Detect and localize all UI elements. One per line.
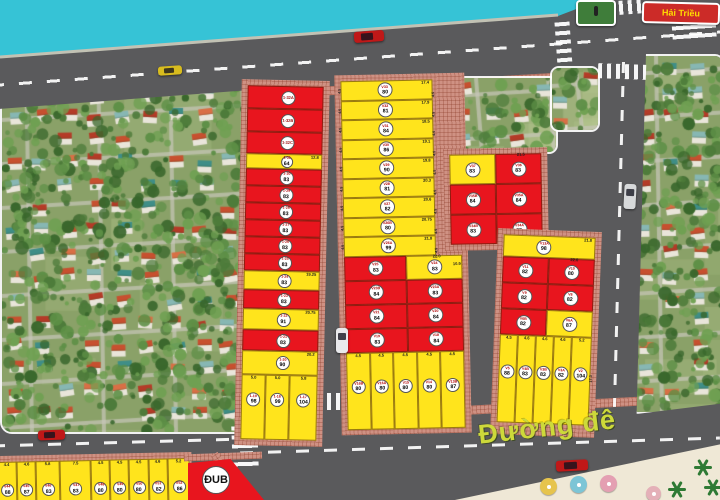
lot-code: 1-21 [280, 335, 287, 338]
plot-label: 1-2583 [278, 255, 292, 269]
plot-V13B[interactable]: 4.5V13B87 [440, 350, 465, 427]
lot-area: 88 [5, 490, 11, 495]
dimension-label: 4.5 [432, 111, 436, 116]
plot-1-29[interactable]: 1-2983 [245, 185, 321, 204]
left-column-strips: 1-32A1-32B1-32C12.81-31641-30831-29831-2… [242, 85, 324, 376]
plot-label: V13B87 [446, 378, 460, 392]
plot-label: V1580 [399, 379, 413, 393]
lot-code: 1-32B [282, 119, 293, 123]
lot-code: V37 [469, 164, 475, 167]
dimension-label: 4.5 [339, 167, 343, 172]
plot-label: V35A84 [511, 191, 526, 206]
plot-label: V16B80 [351, 380, 365, 394]
plot-V44[interactable]: 4.4V4488 [0, 462, 17, 500]
plot-label: V3086 [378, 141, 393, 156]
plot-V37[interactable]: V3783 [449, 154, 496, 185]
plot-V23A[interactable]: V23A83 [407, 278, 463, 303]
plot-label: V13A98 [536, 239, 552, 255]
lot-code: 1-28 [282, 206, 289, 209]
lot-area: 84 [373, 292, 379, 297]
plot-1-24[interactable]: 19.251-2483 [243, 270, 319, 291]
lot-area: 83 [46, 489, 52, 494]
dimension-label: 4.5 [136, 460, 142, 464]
lot-code: 1-30 [283, 172, 290, 175]
dimension-label: 21.8 [585, 238, 593, 242]
lot-code: V18 [433, 334, 439, 337]
masterplan-map: 1-32A1-32B1-32C12.81-31641-30831-29831-2… [0, 0, 720, 500]
lot-area: 80 [403, 386, 409, 391]
lot-code: 1-20 [279, 358, 286, 361]
plot-V11[interactable]: V1182 [502, 256, 549, 284]
dimension-label: 4.5 [433, 170, 437, 175]
dimension-label: 4.5 [355, 353, 361, 357]
right-red-grid: 22.0V1182V1080V982V882V6B82V6A87 [500, 256, 595, 337]
plot-label: V26B80 [380, 219, 395, 234]
dimension-label: 5.2 [579, 338, 585, 342]
plot-label: V5080 [132, 481, 145, 494]
plot-label: 1-2183 [276, 333, 290, 347]
plot-label: 1-3083 [280, 170, 294, 184]
dimension-label: 4.6 [560, 338, 566, 342]
grid-row: V3783V3683 [449, 153, 542, 185]
car-gray-icon [623, 184, 636, 210]
block-left-column: 1-32A1-32B1-32C12.81-31641-30831-29831-2… [234, 79, 330, 447]
dimension-label: 5.8 [45, 462, 51, 466]
lot-code: 1-29 [283, 189, 290, 192]
dimension-label: 4.5 [117, 460, 123, 464]
bottom-row-plots: 4.4V44884.6V45875.8V46837.5V47834.5V4880… [0, 458, 191, 500]
lot-area: 84 [383, 129, 389, 134]
lot-area: 84 [470, 199, 476, 204]
aerial-patch-intersection [550, 66, 600, 132]
lot-code: V2 [578, 369, 583, 372]
lot-area: 82 [567, 297, 573, 302]
plot-V19[interactable]: V1983 [346, 327, 409, 352]
grid-row: V2583V2483 [344, 254, 462, 280]
plot-label: V5286 [173, 480, 186, 493]
plot-V20[interactable]: V2084 [407, 302, 463, 327]
plot-1-27[interactable]: 1-2783 [245, 219, 321, 238]
dub-text: ĐUB [204, 474, 228, 486]
lot-area: 80 [385, 226, 391, 231]
grid-row: V1182V1080 [502, 256, 595, 286]
plot-label: V3783 [465, 162, 480, 177]
dimension-label: 4.5 [340, 206, 344, 211]
grid-row: V6B82V6A87 [500, 308, 593, 338]
dimension-label: 17.3 [589, 376, 593, 384]
plot-V29[interactable]: 19.84.54.5V2990 [342, 157, 434, 178]
lot-code: V9 [522, 291, 527, 294]
lot-code: 1-32C [282, 141, 293, 145]
lot-area: 88 [504, 371, 510, 376]
lot-code: V31 [382, 124, 388, 127]
lot-area: 83 [516, 168, 522, 173]
lot-code: 1-19 [250, 394, 257, 397]
beach-umbrella-icon [570, 476, 587, 493]
plot-label: V4488 [1, 484, 14, 497]
plot-V16A[interactable]: 4.5V16A80 [370, 352, 395, 429]
dimension-label: 4.6 [542, 337, 548, 341]
plot-label: V4980 [113, 481, 126, 494]
lot-area: 98 [250, 399, 256, 404]
pedestrian-icon [594, 6, 598, 16]
lot-code: V29 [383, 163, 389, 166]
plot-label: V2184 [369, 308, 384, 323]
plot-label: 1-3164 [281, 155, 293, 167]
dimension-label: 20.75 [422, 217, 432, 221]
middle-bottom-row: 4.5V16B804.5V16A804.5V15804.5V14804.5V13… [346, 350, 466, 429]
plot-label: V6B82 [516, 314, 532, 330]
plot-label: 1-2983 [279, 187, 293, 201]
lot-area: 83 [432, 266, 438, 271]
lot-code: V19 [374, 335, 380, 338]
plot-1-32C[interactable]: 1-32C [246, 131, 322, 155]
lot-area: 80 [136, 487, 142, 492]
lot-area: 83 [471, 229, 477, 234]
plot-V25[interactable]: V2583 [344, 255, 407, 280]
dimension-label: 4.5 [433, 150, 437, 155]
lot-area: 80 [382, 90, 388, 95]
plot-label: V4B83 [518, 365, 533, 380]
grid-row: V35B84V35A84 [450, 183, 543, 215]
palm-tree-icon [694, 458, 712, 476]
lot-area: 81 [382, 109, 388, 114]
plot-label: V2583 [368, 260, 383, 275]
lot-area: 82 [522, 270, 528, 275]
car-yellow-icon [158, 65, 183, 76]
palm-tree-icon [668, 480, 686, 498]
dimension-label: 4.6 [155, 460, 161, 464]
plot-V45[interactable]: 4.6V4587 [16, 461, 37, 500]
lot-code: V35A [514, 193, 523, 196]
plot-label: V588 [500, 364, 515, 379]
lot-code: V47 [73, 484, 79, 487]
lot-code: 1-18 [274, 395, 281, 398]
car-red-icon [38, 430, 65, 441]
plot-1-32B[interactable]: 1-32B [247, 108, 323, 133]
crosswalk-south [598, 63, 646, 80]
lot-code: V52 [176, 482, 182, 485]
lot-code: V44 [4, 485, 10, 488]
dimension-label: 4.5 [379, 353, 385, 357]
plot-V32[interactable]: 17.94.54.5V3281 [341, 99, 433, 120]
lot-area: 82 [521, 296, 527, 301]
plot-V26A[interactable]: 21.84.54.5V26A99 [344, 235, 436, 256]
plot-V27[interactable]: 20.64.54.5V2782 [343, 196, 435, 217]
dimension-label: 4.5 [341, 245, 345, 250]
lot-area: 83 [470, 169, 476, 174]
lot-code: V34A [515, 223, 524, 226]
dimension-label: 19.8 [423, 158, 431, 162]
plot-1-20[interactable]: 20.21-2090 [242, 350, 318, 376]
lot-area: 64 [284, 161, 290, 166]
lot-area: 84 [433, 314, 439, 319]
plot-1-23[interactable]: 1-2383 [243, 289, 319, 310]
plot-V31[interactable]: 18.54.54.5V3184 [341, 118, 433, 139]
lot-code: V45 [23, 485, 29, 488]
car-white-icon [336, 328, 348, 353]
plot-label: V1080 [564, 264, 580, 280]
block-right-column: 21.8V13A98 22.0V1182V1080V982V882V6B82V6… [490, 228, 602, 438]
lot-area: 80 [356, 387, 362, 392]
plot-label: V23B84 [368, 284, 383, 299]
plot-1-21[interactable]: 1-2183 [242, 329, 318, 352]
plot-label: V4587 [20, 483, 33, 496]
plot-V33[interactable]: 17.44.54.5V3380 [340, 79, 432, 100]
plot-1-32A[interactable]: 1-32A [247, 85, 323, 110]
plot-1-25[interactable]: 1-2583 [244, 253, 320, 272]
plot-label: V5182 [152, 481, 165, 494]
plot-V35B[interactable]: V35B84 [450, 184, 497, 215]
plot-label: V882 [563, 290, 579, 306]
lot-area: 86 [383, 148, 389, 153]
dimension-label: 20.6 [424, 197, 432, 201]
street-name-text: Hải Triều [662, 8, 700, 19]
plot-1-28[interactable]: 1-2883 [245, 202, 321, 221]
plot-label: V1182 [518, 262, 534, 278]
lot-code: V48 [97, 483, 103, 486]
car-red-icon [354, 30, 385, 43]
lot-code: 1-32A [283, 96, 294, 100]
dimension-label: 4.4 [4, 463, 10, 467]
plot-label: ĐUB [202, 466, 230, 494]
lot-area: 84 [516, 198, 522, 203]
plot-label: V2483 [427, 259, 442, 274]
plot-label: V3A82 [554, 366, 569, 381]
plot-label: V2990 [379, 160, 394, 175]
plot-V34B[interactable]: V34B83 [450, 214, 497, 245]
lot-area: 82 [558, 373, 564, 378]
lot-area: 83 [283, 211, 289, 216]
lot-code: 1-25 [281, 257, 288, 260]
lot-area: 83 [540, 372, 546, 377]
lot-area: 104 [576, 374, 585, 380]
dimension-label: 20.2 [307, 353, 315, 357]
lot-area: 83 [73, 488, 79, 493]
lot-code: V11 [522, 265, 528, 268]
lot-area: 104 [299, 400, 308, 405]
lot-code: 1-23 [281, 294, 288, 297]
lot-area: 83 [280, 340, 286, 345]
plot-label: 1-32A [281, 90, 295, 104]
lot-area: 83 [432, 290, 438, 295]
lot-area: 83 [282, 280, 288, 285]
lot-code: 1-22 [280, 314, 287, 317]
plot-V52[interactable]: 5.2V5286 [168, 458, 191, 500]
dimension-label: 20.75 [306, 311, 316, 315]
dimension-label: 4.5 [435, 228, 439, 233]
plot-1-22[interactable]: 20.751-2291 [243, 308, 319, 331]
lot-code: V5 [505, 366, 510, 369]
plot-label: V1480 [422, 379, 436, 393]
crossing-sign [576, 0, 616, 26]
plot-V47[interactable]: 7.5V4783 [60, 460, 92, 500]
plot-V36[interactable]: V3683 [495, 153, 542, 184]
lot-area: 83 [282, 245, 288, 250]
dimension-label: 4.5 [506, 335, 512, 339]
lot-code: V10 [568, 267, 575, 270]
lot-area: 82 [384, 207, 390, 212]
plot-V23B[interactable]: V23B84 [345, 279, 408, 304]
plot-V28[interactable]: 20.34.54.5V2881 [342, 177, 434, 198]
plot-1-19[interactable]: 5.01-1998 [240, 374, 266, 439]
lot-area: 99 [274, 399, 280, 404]
dimension-label: 4.5 [341, 225, 345, 230]
plot-V30[interactable]: 19.14.54.5V3086 [342, 138, 434, 159]
plot-V6B[interactable]: V6B82 [500, 308, 547, 336]
plot-label: V6A87 [562, 316, 578, 332]
plot-label: V34B83 [466, 222, 481, 237]
dimension-label: 4.5 [432, 92, 436, 97]
plot-label: V2104 [573, 367, 588, 382]
lot-code: V49 [117, 483, 123, 486]
lot-area: 81 [384, 187, 390, 192]
plot-label: V16A80 [375, 380, 389, 394]
plot-label: 1-2483 [277, 273, 291, 287]
aerial-left-neighborhood [0, 56, 250, 434]
dimension-label: 4.5 [449, 351, 455, 355]
dimension-label: 5.0 [251, 375, 257, 379]
dimension-label: 4.6 [524, 336, 530, 340]
lot-code: V24 [431, 262, 437, 265]
dimension-label: 21.5 [517, 152, 525, 156]
plot-V15[interactable]: 4.5V1580 [393, 351, 418, 428]
dimension-label: 4.5 [97, 461, 103, 465]
plot-label: 1-2383 [277, 292, 291, 306]
plot-V35A[interactable]: V35A84 [496, 183, 543, 214]
lot-code: V6B [520, 317, 527, 321]
plot-label: V35B84 [465, 192, 480, 207]
plot-1-17[interactable]: 5.81-17104 [289, 375, 318, 441]
palm-tree-icon [704, 478, 720, 496]
plot-V8[interactable]: V882 [547, 284, 594, 312]
lot-code: 1-27 [282, 223, 289, 226]
lot-area: 80 [426, 385, 432, 390]
plot-V21[interactable]: V2184 [345, 303, 408, 328]
dimension-label: 10.9 [453, 261, 461, 265]
lot-code: V46 [45, 484, 51, 487]
dimension-label: 18.5 [422, 119, 430, 123]
dimension-label: 4.5 [339, 128, 343, 133]
beach-umbrella-icon [600, 475, 617, 492]
plot-V46[interactable]: 5.8V4683 [36, 461, 61, 500]
plot-label: 1-2291 [277, 312, 291, 326]
middle-red-grid: 22.010.9V2583V2483V23B84V23A83V2184V2084… [344, 254, 464, 352]
plot-V48[interactable]: 4.5V4880 [91, 460, 111, 500]
plot-label: 1-2683 [278, 238, 292, 252]
lot-code: V36 [515, 163, 521, 166]
lot-code: V20 [432, 310, 438, 313]
dimension-label: 17.4 [421, 80, 429, 84]
lot-area: 82 [156, 487, 162, 492]
plot-label: V3281 [378, 102, 393, 117]
lot-area: 83 [283, 228, 289, 233]
lot-area: 80 [568, 271, 574, 276]
plot-V10[interactable]: V1080 [548, 258, 595, 286]
lot-area: 82 [520, 322, 526, 327]
plot-V51[interactable]: 4.6V5182 [148, 458, 169, 500]
beach-umbrella-icon [540, 478, 557, 495]
crossing-sign-image [578, 2, 614, 24]
plot-V16B[interactable]: 4.5V16B80 [346, 352, 371, 429]
lot-code: V50 [136, 482, 142, 485]
lot-code: V26A [383, 241, 392, 244]
dimension-label: 12.8 [311, 156, 319, 160]
lot-area: 86 [176, 486, 182, 491]
plot-label: V3184 [378, 121, 393, 136]
block-middle: 17.44.54.5V338017.94.54.5V328118.54.54.5… [334, 73, 472, 436]
dimension-label: 4.5 [434, 209, 438, 214]
lot-code: 1-24 [281, 275, 288, 278]
grid-row: V23B84V23A83 [345, 278, 463, 304]
lot-code: V51 [155, 482, 161, 485]
lot-area: 83 [283, 194, 289, 199]
lot-area: 83 [281, 299, 287, 304]
plot-label: V2084 [428, 307, 443, 322]
plot-V9[interactable]: V982 [501, 282, 548, 310]
plot-1-31[interactable]: 12.81-3164 [246, 153, 322, 170]
plot-label: 1-32B [281, 113, 295, 127]
lot-code: V21 [373, 311, 379, 314]
dimension-label: 4.5 [340, 186, 344, 191]
lot-area: 99 [385, 245, 391, 250]
lot-area: 87 [450, 385, 456, 390]
dimension-label: 4.5 [434, 189, 438, 194]
plot-label: 1-32C [280, 136, 294, 150]
middle-top-strips: 17.44.54.5V338017.94.54.5V328118.54.54.5… [340, 79, 436, 256]
lot-area: 83 [282, 262, 288, 267]
plot-1-26[interactable]: 1-2683 [244, 236, 320, 255]
dimension-label: 5.2 [176, 459, 182, 463]
lot-area: 87 [566, 323, 572, 328]
plot-label: V1983 [369, 332, 384, 347]
lot-area: 83 [522, 372, 528, 377]
plot-V18[interactable]: V1884 [408, 326, 464, 351]
block-bottom-row: 4.4V44884.6V45875.8V46837.5V47834.5V4880… [0, 452, 193, 500]
plot-label: 1-2090 [276, 356, 290, 370]
plot-1-30[interactable]: 1-3083 [246, 168, 322, 187]
plot-V26B[interactable]: 20.754.54.5V26B80 [343, 216, 435, 237]
plot-label: V4683 [42, 483, 55, 496]
dimension-label: 22.0 [433, 254, 441, 258]
plot-label: 1-17104 [296, 393, 310, 407]
street-name-sign: Hải Triều [642, 1, 720, 25]
plot-label: V3B83 [536, 366, 551, 381]
lot-code: V35B [468, 194, 477, 197]
plot-V6A[interactable]: V6A87 [546, 310, 593, 338]
grid-row: V982V882 [501, 282, 594, 312]
car-red-icon [556, 459, 589, 472]
dimension-label: 4.6 [23, 462, 29, 466]
dimension-label: 4.5 [338, 89, 342, 94]
plot-V50[interactable]: 4.5V5080 [129, 459, 149, 500]
plot-V49[interactable]: 4.5V4980 [110, 459, 130, 500]
lot-area: 80 [379, 386, 385, 391]
plot-1-18[interactable]: 5.01-1899 [264, 375, 290, 440]
dimension-label: 5.8 [301, 376, 307, 380]
plot-V14[interactable]: 4.5V1480 [417, 351, 442, 428]
plot-label: 1-1899 [270, 393, 284, 407]
lot-code: V23A [430, 286, 439, 289]
plot-label: 1-1998 [246, 392, 260, 406]
lot-code: 1-31 [284, 156, 291, 159]
lot-area: 83 [284, 177, 290, 182]
dimension-label: 19.25 [307, 273, 317, 277]
lot-code: V6A [566, 319, 573, 323]
plot-label: V3380 [377, 82, 392, 97]
plot-label: V2782 [380, 199, 395, 214]
lot-code: 1-26 [282, 240, 289, 243]
